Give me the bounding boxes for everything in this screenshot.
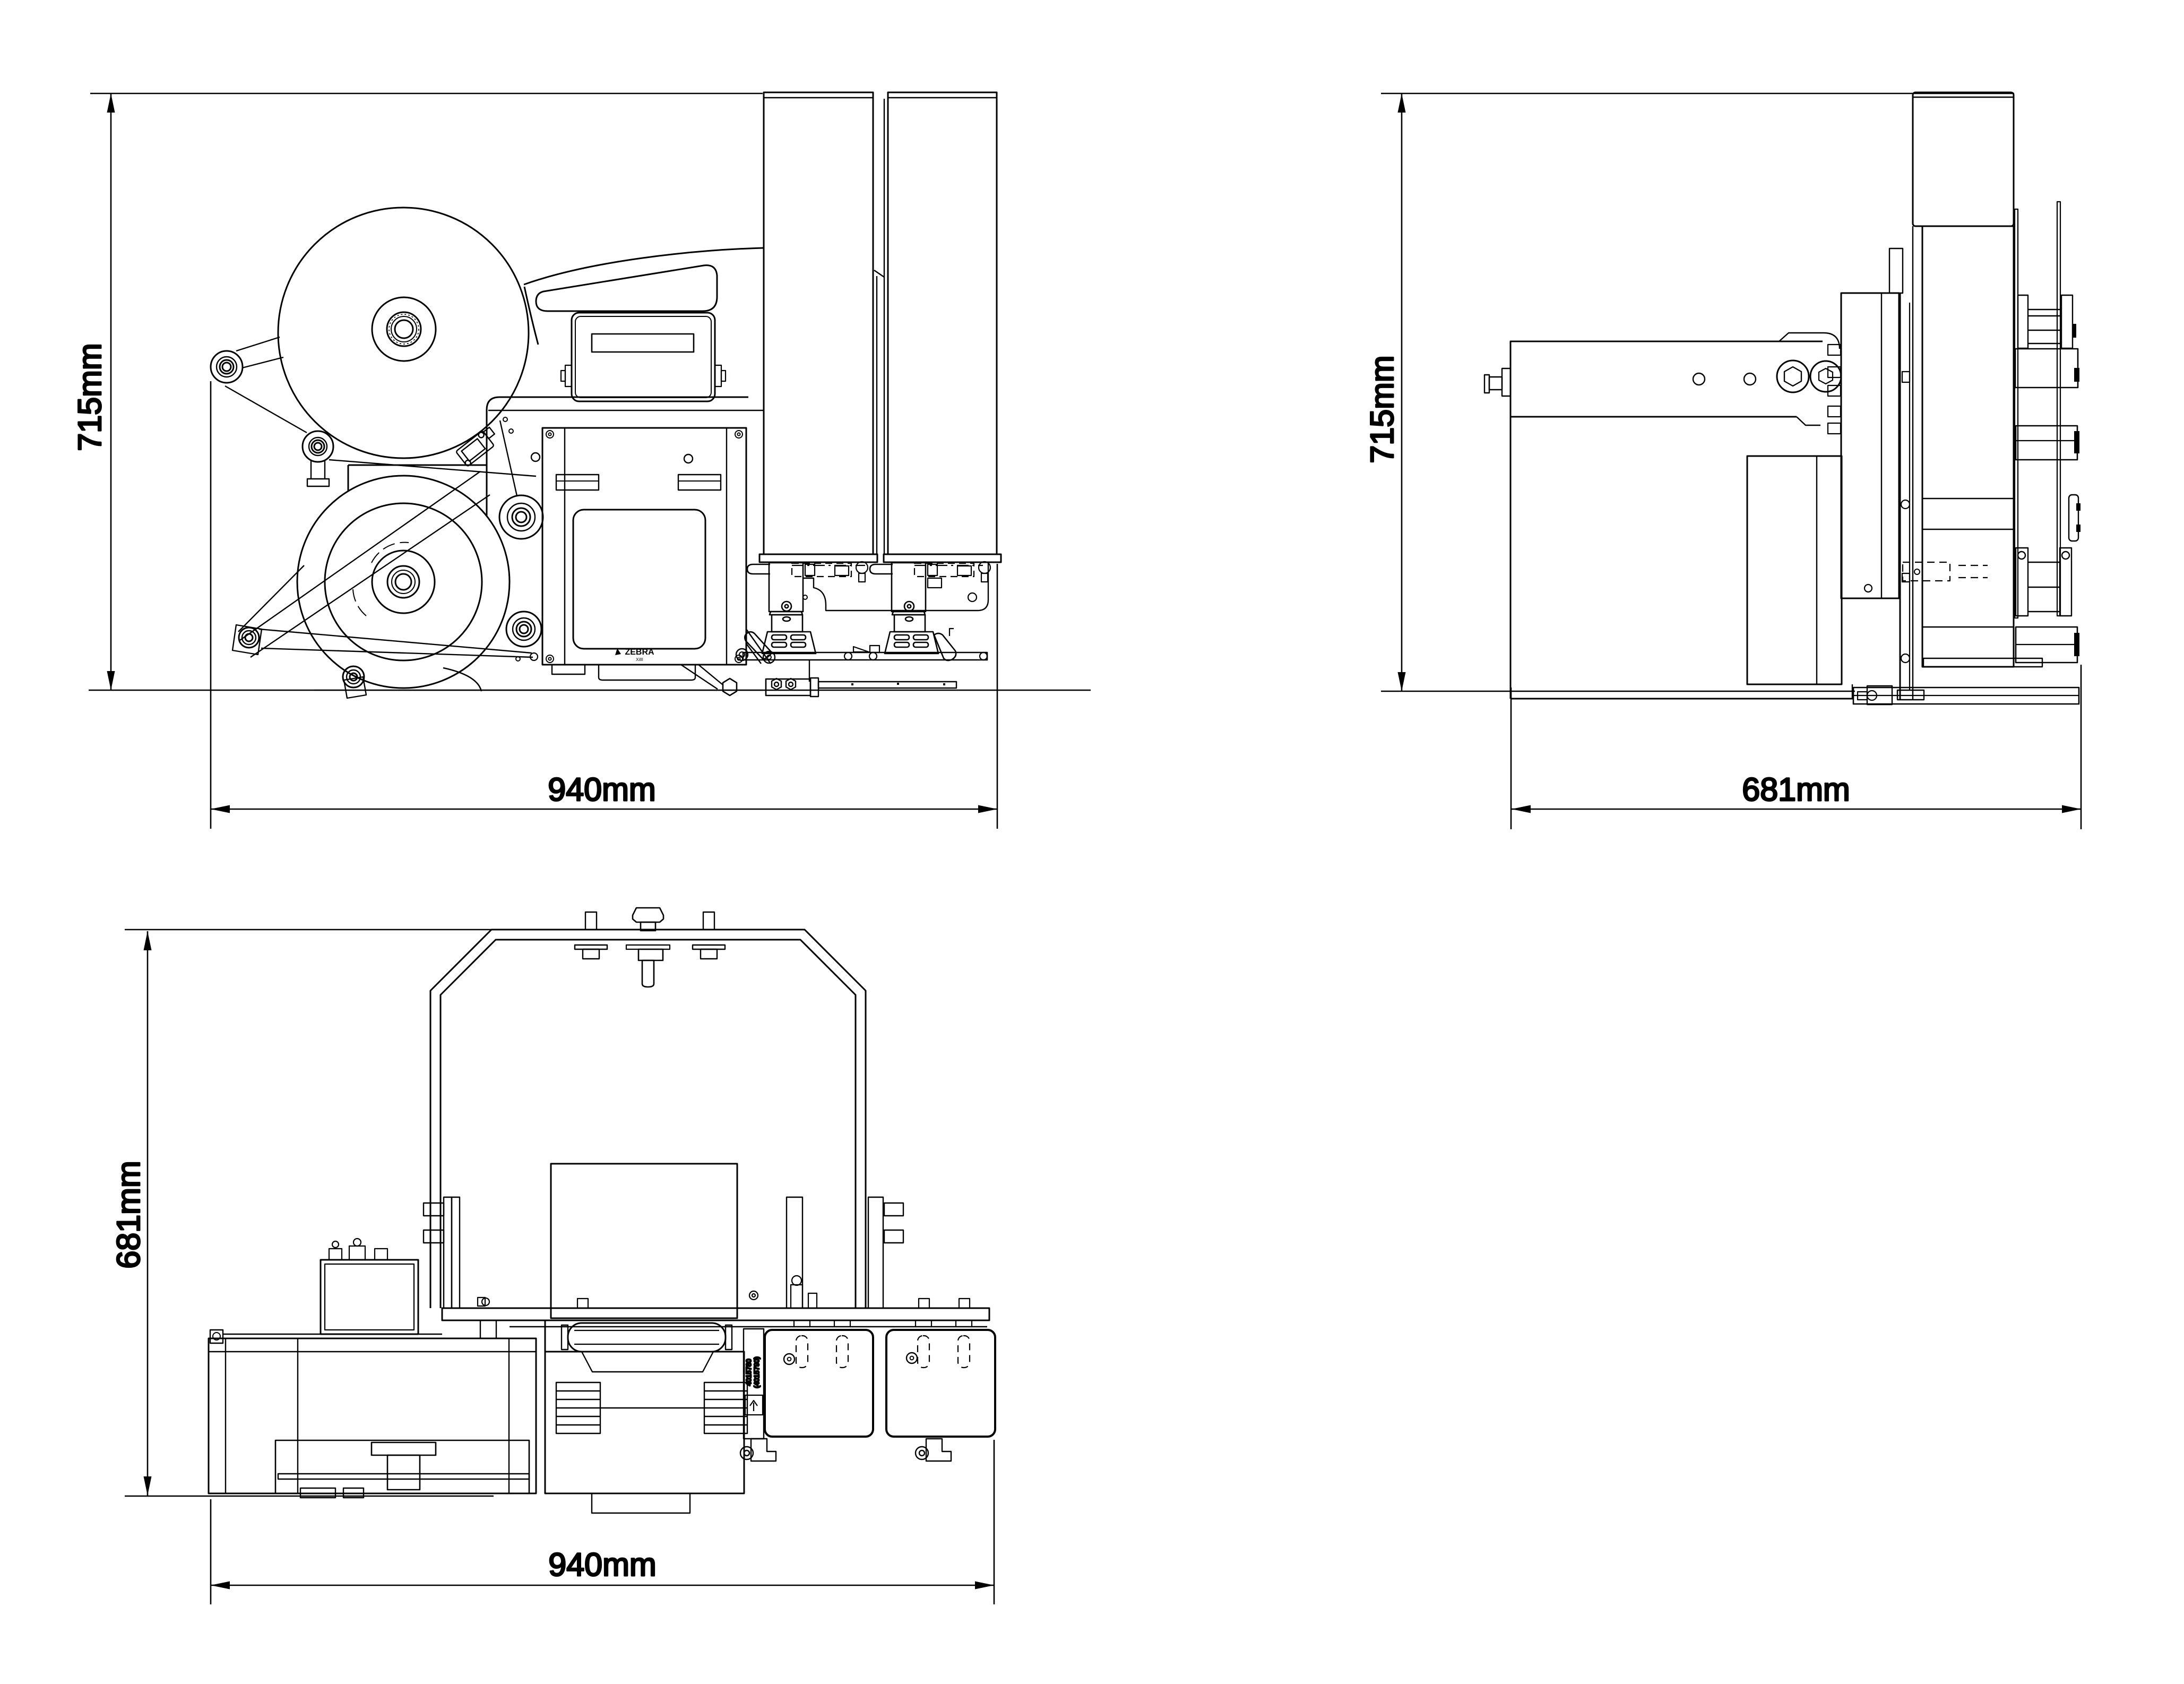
svg-text:681mm: 681mm	[1742, 771, 1850, 807]
svg-text:XiIII: XiIII	[636, 657, 643, 662]
svg-text:ZEBRA: ZEBRA	[625, 648, 654, 657]
svg-text:(4015790): (4015790)	[753, 1356, 761, 1388]
svg-text:681mm: 681mm	[110, 1161, 146, 1268]
svg-text:715mm: 715mm	[72, 343, 108, 451]
svg-text:4015780: 4015780	[745, 1359, 753, 1386]
svg-text:940mm: 940mm	[548, 1546, 656, 1583]
svg-text:940mm: 940mm	[548, 771, 655, 807]
svg-text:715mm: 715mm	[1364, 355, 1400, 463]
